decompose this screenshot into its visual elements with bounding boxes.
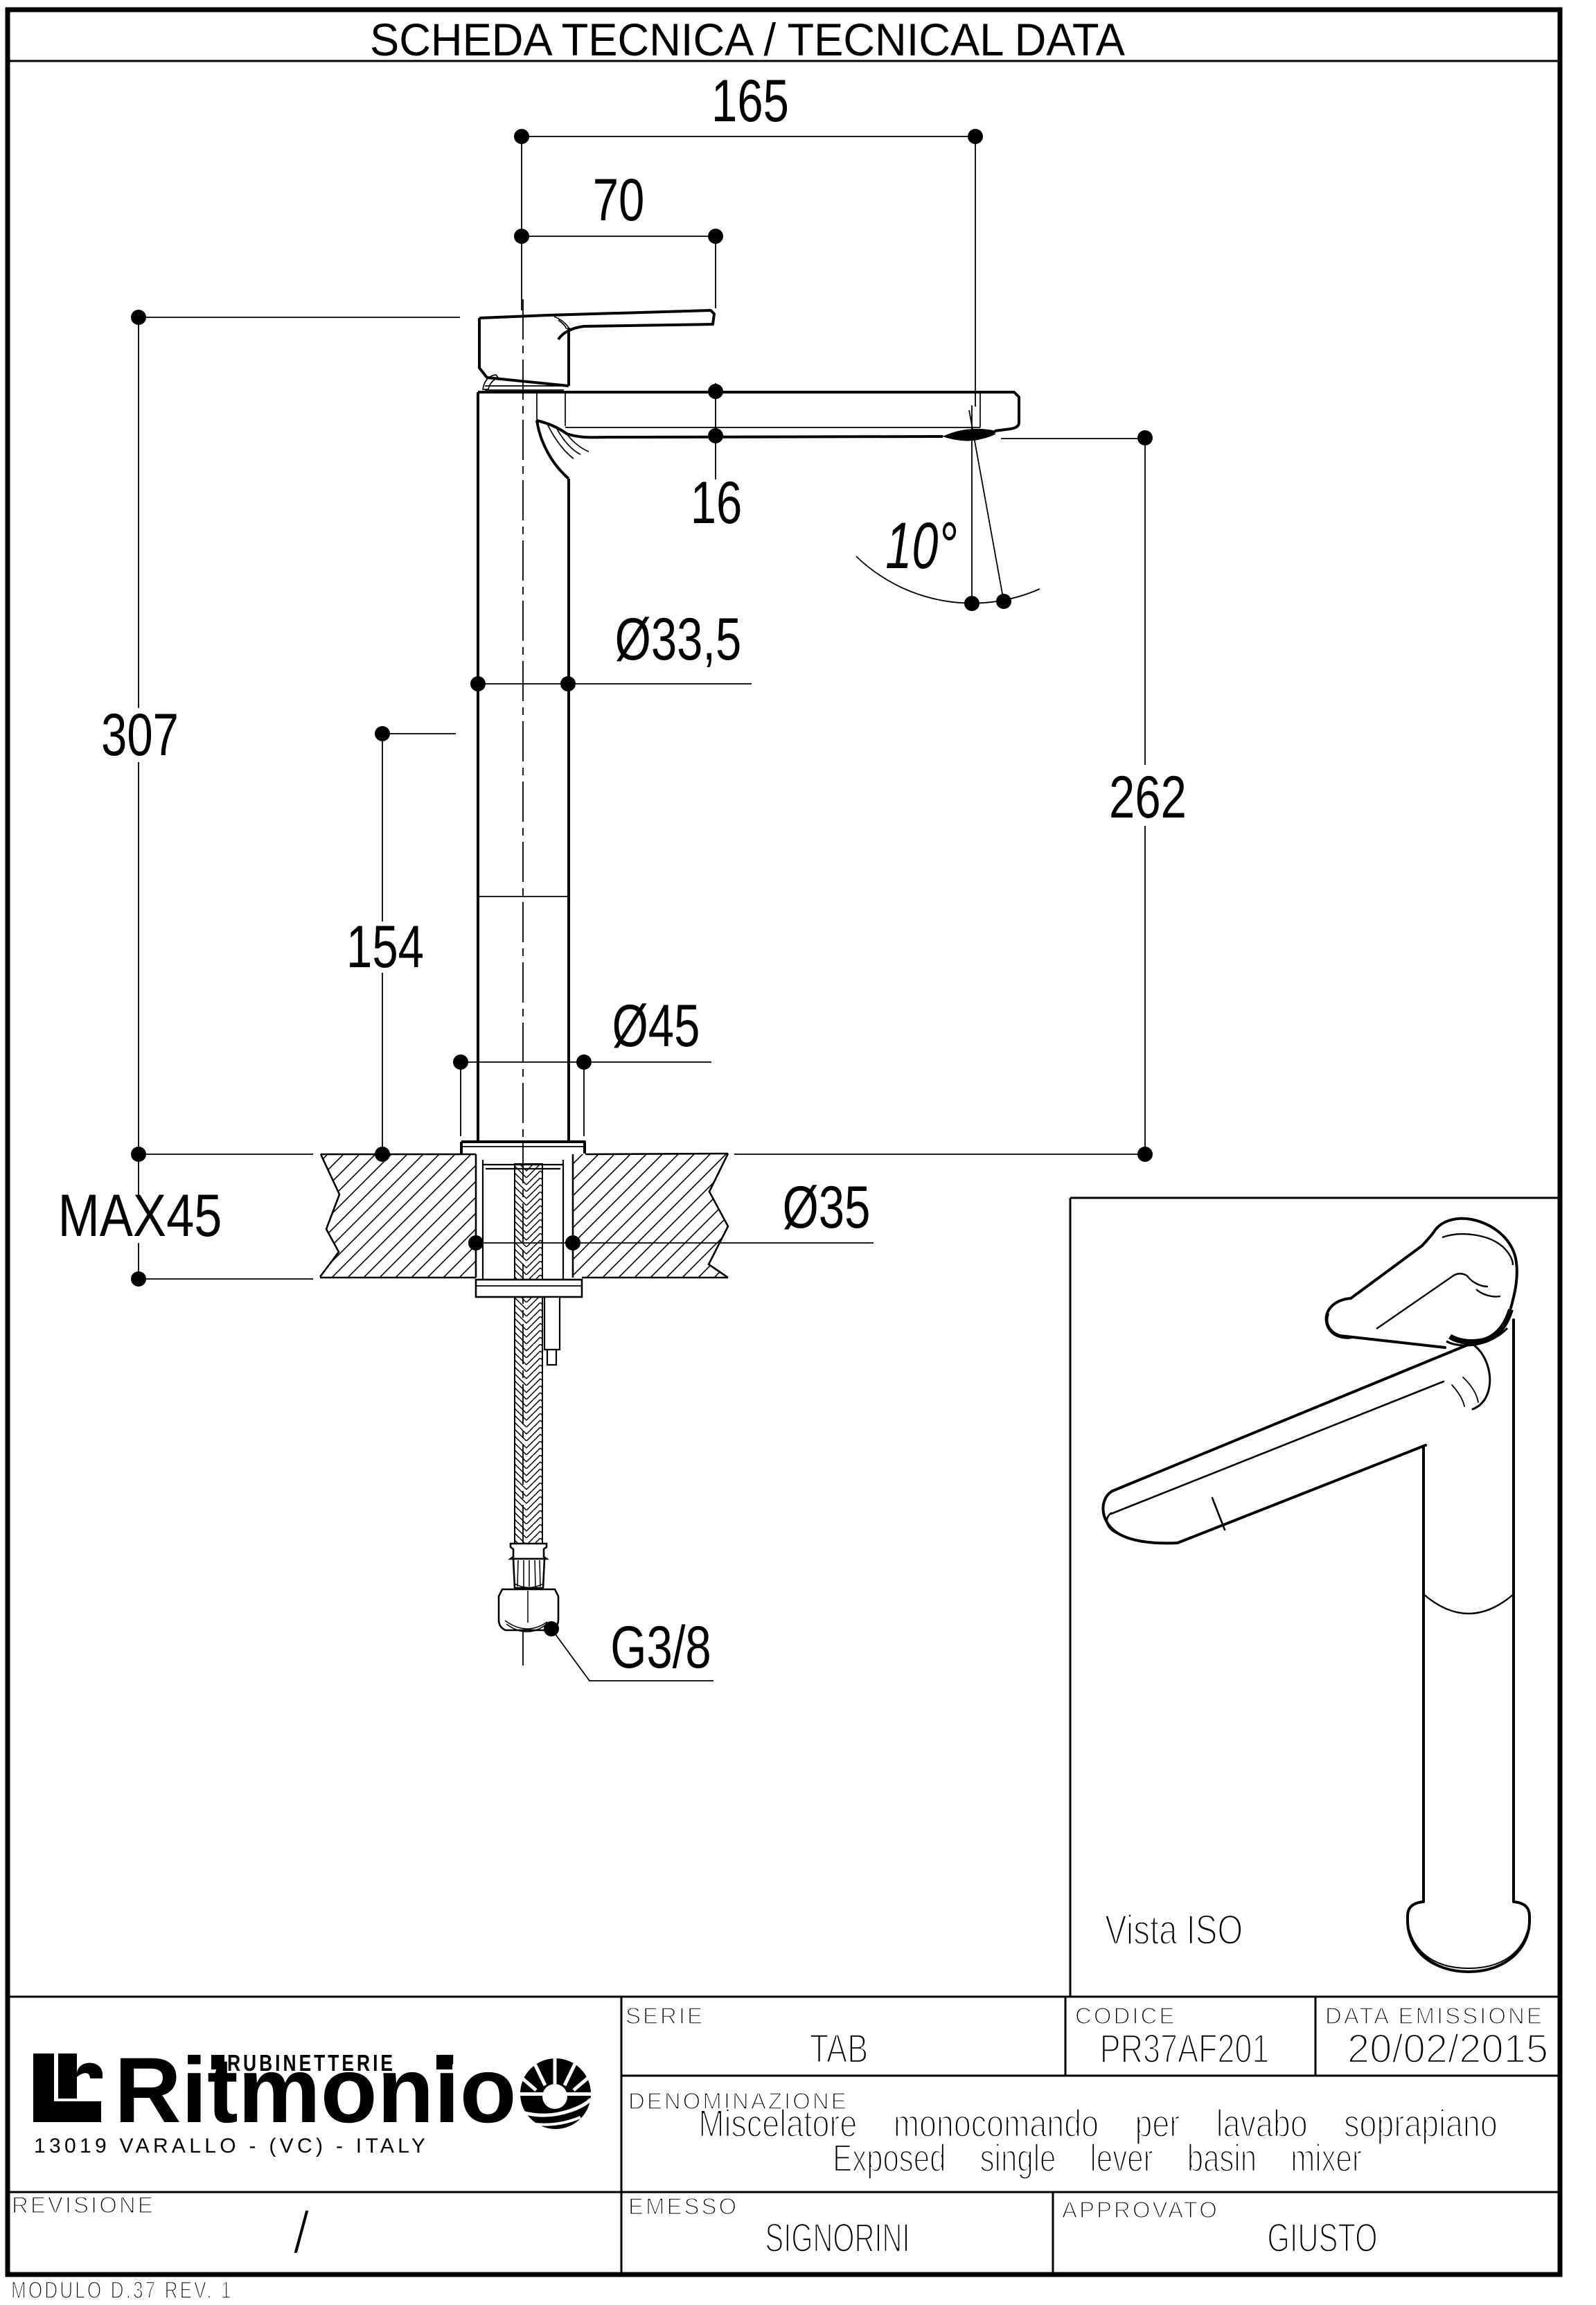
svg-text:EMESSO: EMESSO: [628, 2193, 738, 2219]
svg-text:DATA EMISSIONE: DATA EMISSIONE: [1325, 2003, 1544, 2029]
svg-text:SCHEDA TECNICA / TECNICAL DATA: SCHEDA TECNICA / TECNICAL DATA: [370, 14, 1125, 65]
svg-text:307: 307: [101, 702, 179, 768]
svg-text:TAB: TAB: [810, 2027, 869, 2072]
svg-text:MAX45: MAX45: [58, 1182, 222, 1248]
svg-text:Exposed single lever basin mix: Exposed single lever basin mixer: [833, 2137, 1362, 2180]
svg-text:CODICE: CODICE: [1075, 2003, 1176, 2029]
svg-text:20/02/2015: 20/02/2015: [1347, 2026, 1548, 2072]
svg-text:70: 70: [593, 167, 645, 233]
svg-text:SERIE: SERIE: [626, 2003, 704, 2029]
svg-text:G3/8: G3/8: [610, 1614, 711, 1681]
svg-text:SIGNORINI: SIGNORINI: [765, 2216, 910, 2261]
svg-text:MODULO D.37 REV. 1: MODULO D.37 REV. 1: [11, 2278, 233, 2304]
svg-text:154: 154: [346, 914, 424, 980]
svg-text:10°: 10°: [885, 509, 957, 583]
svg-text:13019 VARALLO - (VC) - ITALY: 13019 VARALLO - (VC) - ITALY: [34, 2135, 429, 2157]
svg-text:APPROVATO: APPROVATO: [1062, 2197, 1219, 2223]
svg-text:16: 16: [691, 470, 743, 536]
svg-text:Ø33,5: Ø33,5: [615, 606, 742, 673]
svg-text:Ritmonio: Ritmonio: [114, 2039, 517, 2142]
svg-text:Ø35: Ø35: [783, 1174, 871, 1241]
svg-text:PR37AF201: PR37AF201: [1100, 2026, 1270, 2071]
svg-text:165: 165: [711, 68, 789, 134]
svg-text:Vista ISO: Vista ISO: [1105, 1907, 1243, 1954]
svg-text:262: 262: [1109, 764, 1187, 831]
svg-text:GIUSTO: GIUSTO: [1267, 2215, 1377, 2260]
svg-text:/: /: [293, 2200, 310, 2266]
svg-text:REVISIONE: REVISIONE: [12, 2192, 155, 2218]
svg-text:Ø45: Ø45: [612, 993, 700, 1059]
